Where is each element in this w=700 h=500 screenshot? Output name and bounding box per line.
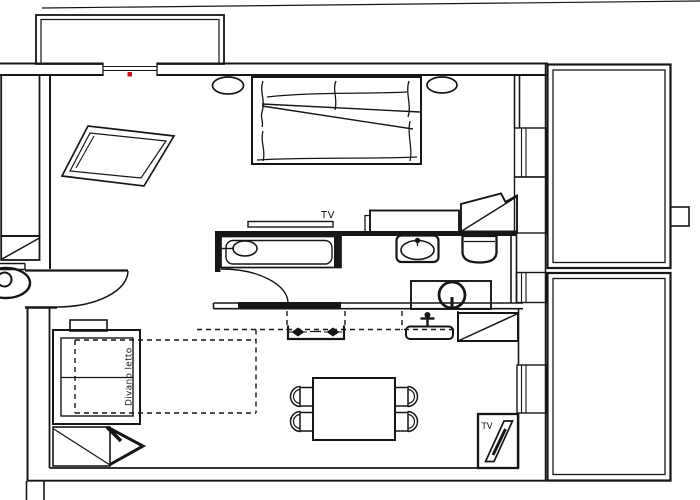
dining-chair — [291, 387, 314, 407]
dining-chair — [395, 412, 418, 432]
bathroom — [214, 231, 524, 309]
rotated-side-table — [62, 126, 174, 186]
dining-chair — [291, 412, 314, 432]
cooktop — [288, 326, 344, 340]
floor-plan-page: TV — [0, 0, 700, 500]
balcony-window — [103, 63, 157, 77]
bathroom-door-swing — [221, 269, 288, 303]
double-bed — [252, 77, 421, 164]
living-tv-label: TV — [481, 422, 493, 432]
stair-column — [1, 75, 39, 236]
shower — [411, 281, 491, 309]
hatched-box — [1, 236, 39, 260]
kitchen-sink — [406, 327, 453, 340]
dining-table — [313, 378, 395, 440]
tv-shelf: TV — [248, 210, 335, 227]
wall-window-lower — [517, 365, 547, 413]
appliance-box — [458, 313, 518, 341]
right-wall-strip — [515, 75, 547, 468]
unit-symbol — [0, 268, 30, 298]
wall-window-middle — [517, 273, 547, 303]
washbasin — [397, 236, 439, 263]
dining-chair — [395, 387, 418, 407]
loggia-upper — [548, 65, 671, 269]
kitchen — [197, 311, 518, 413]
kitchen-faucet — [421, 312, 435, 327]
wall-window-upper — [515, 128, 547, 177]
dresser — [365, 211, 459, 233]
loggia-divider — [671, 207, 690, 226]
living-room: Divano letto — [53, 320, 518, 468]
outer-walls — [0, 64, 672, 500]
balcony — [36, 15, 224, 64]
toilet — [463, 236, 497, 263]
folding-lounge-chair — [53, 427, 143, 466]
loggia-lower — [548, 273, 671, 481]
sofa-bed: Divano letto — [53, 330, 140, 424]
sheet-edge-line — [42, 1, 700, 8]
bedside-lamp-left — [213, 77, 244, 94]
sofa-bed-label: Divano letto — [125, 347, 135, 406]
tv-cabinet: TV — [478, 414, 518, 468]
bedside-lamp-right — [427, 77, 457, 93]
sofa-bed-extension — [75, 340, 256, 413]
corner-wardrobe — [461, 194, 517, 232]
bedroom: TV — [62, 77, 517, 232]
wall-block — [515, 177, 547, 233]
window-marker — [128, 72, 133, 77]
bedroom-tv-label: TV — [320, 210, 335, 221]
floor-plan-drawing: TV — [0, 0, 700, 500]
entrance-door — [25, 271, 128, 308]
bathtub — [221, 236, 341, 268]
